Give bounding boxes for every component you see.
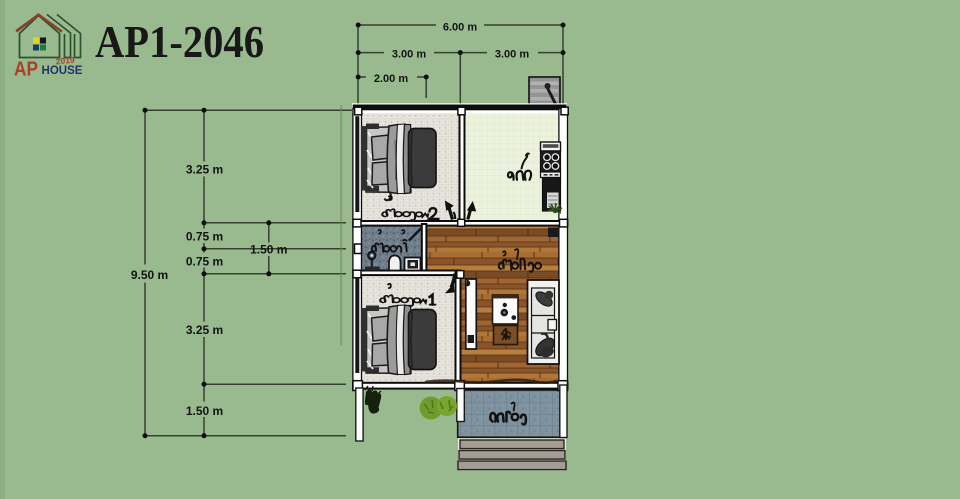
svg-text:1.50 m: 1.50 m bbox=[250, 242, 287, 256]
svg-text:1.50 m: 1.50 m bbox=[186, 404, 223, 418]
svg-text:0.75 m: 0.75 m bbox=[186, 254, 223, 268]
svg-text:AP1-2046: AP1-2046 bbox=[95, 16, 264, 67]
svg-text:3.25 m: 3.25 m bbox=[186, 323, 223, 337]
svg-text:HOUSE: HOUSE bbox=[42, 65, 83, 77]
svg-text:2019: 2019 bbox=[55, 55, 75, 67]
svg-text:9.50 m: 9.50 m bbox=[131, 268, 168, 282]
svg-text:6.00 m: 6.00 m bbox=[443, 22, 477, 34]
svg-text:2.00 m: 2.00 m bbox=[374, 73, 408, 85]
svg-text:0.75 m: 0.75 m bbox=[186, 230, 223, 244]
svg-text:AP: AP bbox=[14, 59, 38, 81]
svg-text:3.00 m: 3.00 m bbox=[495, 49, 529, 61]
svg-text:3.00 m: 3.00 m bbox=[392, 49, 426, 61]
svg-text:3.25 m: 3.25 m bbox=[186, 163, 223, 177]
